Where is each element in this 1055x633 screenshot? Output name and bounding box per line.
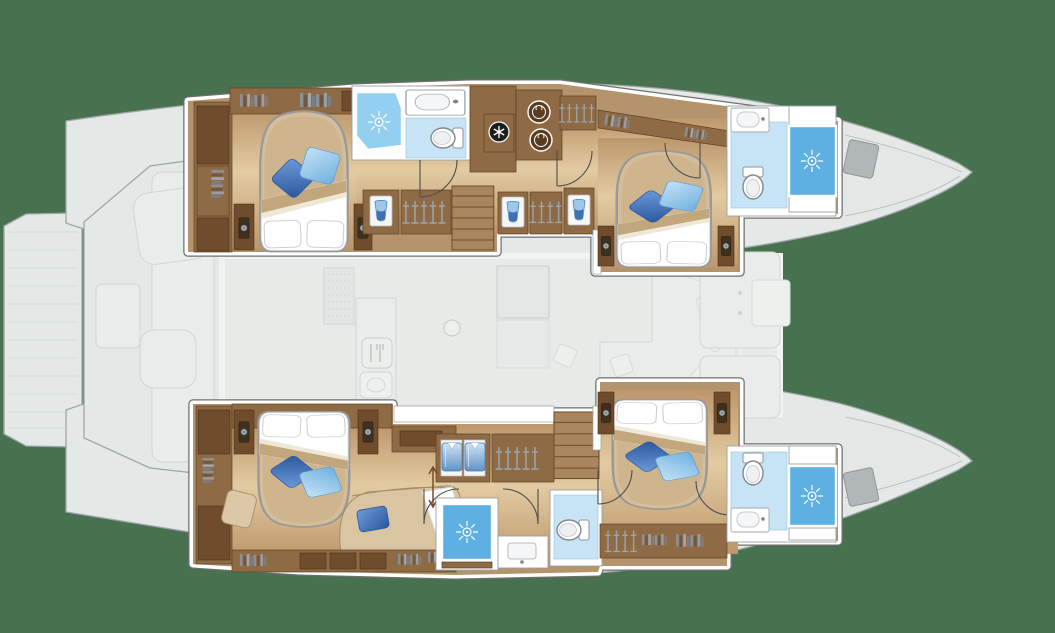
toilet (557, 520, 589, 540)
toilet (743, 167, 763, 199)
windlass-box-lower (843, 467, 879, 506)
toilet-room-starboard (550, 490, 602, 566)
hanging-locker (560, 96, 596, 130)
forward-bathroom-starboard (727, 446, 836, 542)
washbasin (406, 90, 465, 115)
aft-cabin-bed (258, 412, 349, 527)
windlass-box-upper (843, 139, 879, 178)
sofa-pillow (356, 506, 389, 533)
washer-icon (528, 101, 550, 123)
aft-cabin (194, 88, 372, 252)
cutlery-icon (362, 338, 392, 368)
aft-cockpit-seat (140, 330, 196, 388)
toilet (431, 128, 463, 148)
saloon-rug (497, 320, 549, 368)
forward-cabin-bed (613, 400, 707, 509)
forward-bathroom-port (727, 106, 836, 216)
forward-cabin-bed (617, 151, 711, 267)
hanging-locker (492, 434, 554, 482)
washbasin (731, 508, 769, 532)
mast-post (444, 320, 460, 336)
vent-fan-icon (489, 122, 509, 142)
dryer-icon (530, 129, 552, 151)
stairs (554, 412, 599, 479)
washbasin (508, 543, 536, 559)
aft-cabin-bed (260, 111, 347, 251)
galley-ghost (356, 298, 396, 400)
stairs (452, 186, 494, 250)
catamaran-floorplan (0, 0, 1055, 633)
hanging-locker (530, 192, 562, 234)
floorplan-canvas (0, 0, 1055, 633)
dining-table (497, 266, 549, 318)
galley-sink (360, 372, 392, 398)
cockpit-table (96, 284, 140, 348)
toilet (743, 453, 763, 485)
aft-bathroom (352, 86, 470, 160)
foredeck-step (752, 280, 790, 326)
washbasin (731, 108, 769, 132)
